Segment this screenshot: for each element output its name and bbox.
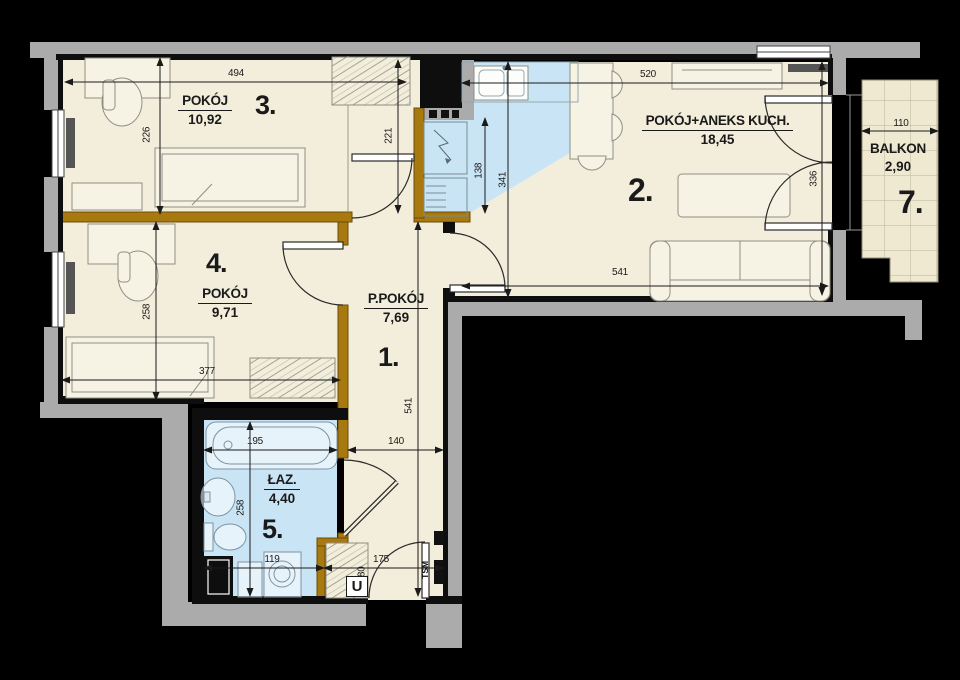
room7-label: BALKON 2,90 bbox=[856, 140, 940, 175]
floor-plan: POKÓJ 10,92 3. POKÓJ+ANEKS KUCH. 18,45 2… bbox=[0, 0, 960, 680]
dim-room4-height: 258 bbox=[141, 290, 153, 334]
room3-name: POKÓJ bbox=[178, 93, 232, 111]
room1-name: P.POKÓJ bbox=[364, 291, 428, 309]
bed bbox=[155, 148, 305, 207]
radiator-icon bbox=[66, 118, 75, 168]
radiator-icon bbox=[66, 262, 75, 314]
dim-balcony-width: 110 bbox=[879, 118, 923, 130]
table bbox=[570, 63, 613, 159]
dim-room2-bottom-width: 541 bbox=[598, 267, 642, 279]
room1-label: P.POKÓJ 7,69 bbox=[351, 290, 441, 325]
room2-label: POKÓJ+ANEKS KUCH. 18,45 bbox=[625, 112, 810, 147]
room7-name: BALKON bbox=[866, 141, 930, 158]
room3-number: 3. bbox=[255, 90, 276, 121]
room1-area: 7,69 bbox=[351, 309, 441, 326]
sideboard bbox=[672, 63, 782, 89]
room2-window-icon bbox=[757, 46, 830, 58]
dim-room3-right-height: 221 bbox=[383, 114, 395, 158]
room3-window-icon bbox=[52, 110, 64, 177]
room4-number: 4. bbox=[206, 248, 227, 279]
toilet-tank bbox=[204, 523, 213, 551]
dim-hall-length: 541 bbox=[403, 384, 415, 428]
dim-room3-left-height: 226 bbox=[141, 113, 153, 157]
room4-window-icon bbox=[52, 252, 64, 327]
room3-area: 10,92 bbox=[150, 111, 260, 128]
meter-box-icon bbox=[434, 560, 444, 584]
room4-label: POKÓJ 9,71 bbox=[180, 285, 270, 320]
dim-room4-width: 377 bbox=[185, 366, 229, 378]
cabinet bbox=[72, 183, 142, 210]
dim-bath-height: 258 bbox=[235, 486, 247, 530]
wardrobe bbox=[250, 358, 335, 398]
room4-area: 9,71 bbox=[180, 304, 270, 321]
room5-name: ŁAZ. bbox=[264, 472, 301, 490]
dim-room2-right-height: 336 bbox=[808, 157, 820, 201]
room7-number: 7. bbox=[898, 184, 923, 221]
faucet-icon bbox=[503, 66, 508, 71]
room3-label: POKÓJ 10,92 bbox=[150, 92, 260, 127]
dim-bath-bottom-width: 119 bbox=[250, 554, 294, 566]
meter-box-icon bbox=[434, 531, 444, 545]
room2-number: 2. bbox=[628, 172, 653, 209]
room1-number: 1. bbox=[378, 342, 399, 373]
room2-name: POKÓJ+ANEKS KUCH. bbox=[642, 113, 794, 131]
room5-label: ŁAZ. 4,40 bbox=[247, 471, 317, 506]
room4-name: POKÓJ bbox=[198, 286, 252, 304]
dim-bath-top-width: 195 bbox=[233, 436, 277, 448]
dim-room2-top-width: 520 bbox=[626, 69, 670, 81]
dim-room3-width: 494 bbox=[214, 68, 258, 80]
room2-area: 18,45 bbox=[625, 131, 810, 148]
dim-hall-width: 140 bbox=[374, 436, 418, 448]
meter-box-tag: TSM bbox=[421, 555, 431, 585]
wardrobe-tag: U bbox=[346, 576, 368, 597]
room7-area: 2,90 bbox=[856, 158, 940, 175]
room5-area: 4,40 bbox=[247, 490, 317, 507]
room5-number: 5. bbox=[262, 514, 283, 545]
dim-kitchen-depth: 138 bbox=[473, 149, 485, 193]
vent-icons bbox=[429, 110, 459, 118]
dim-room2-left-height: 341 bbox=[497, 158, 509, 202]
floor-plan-drawing bbox=[0, 0, 960, 680]
